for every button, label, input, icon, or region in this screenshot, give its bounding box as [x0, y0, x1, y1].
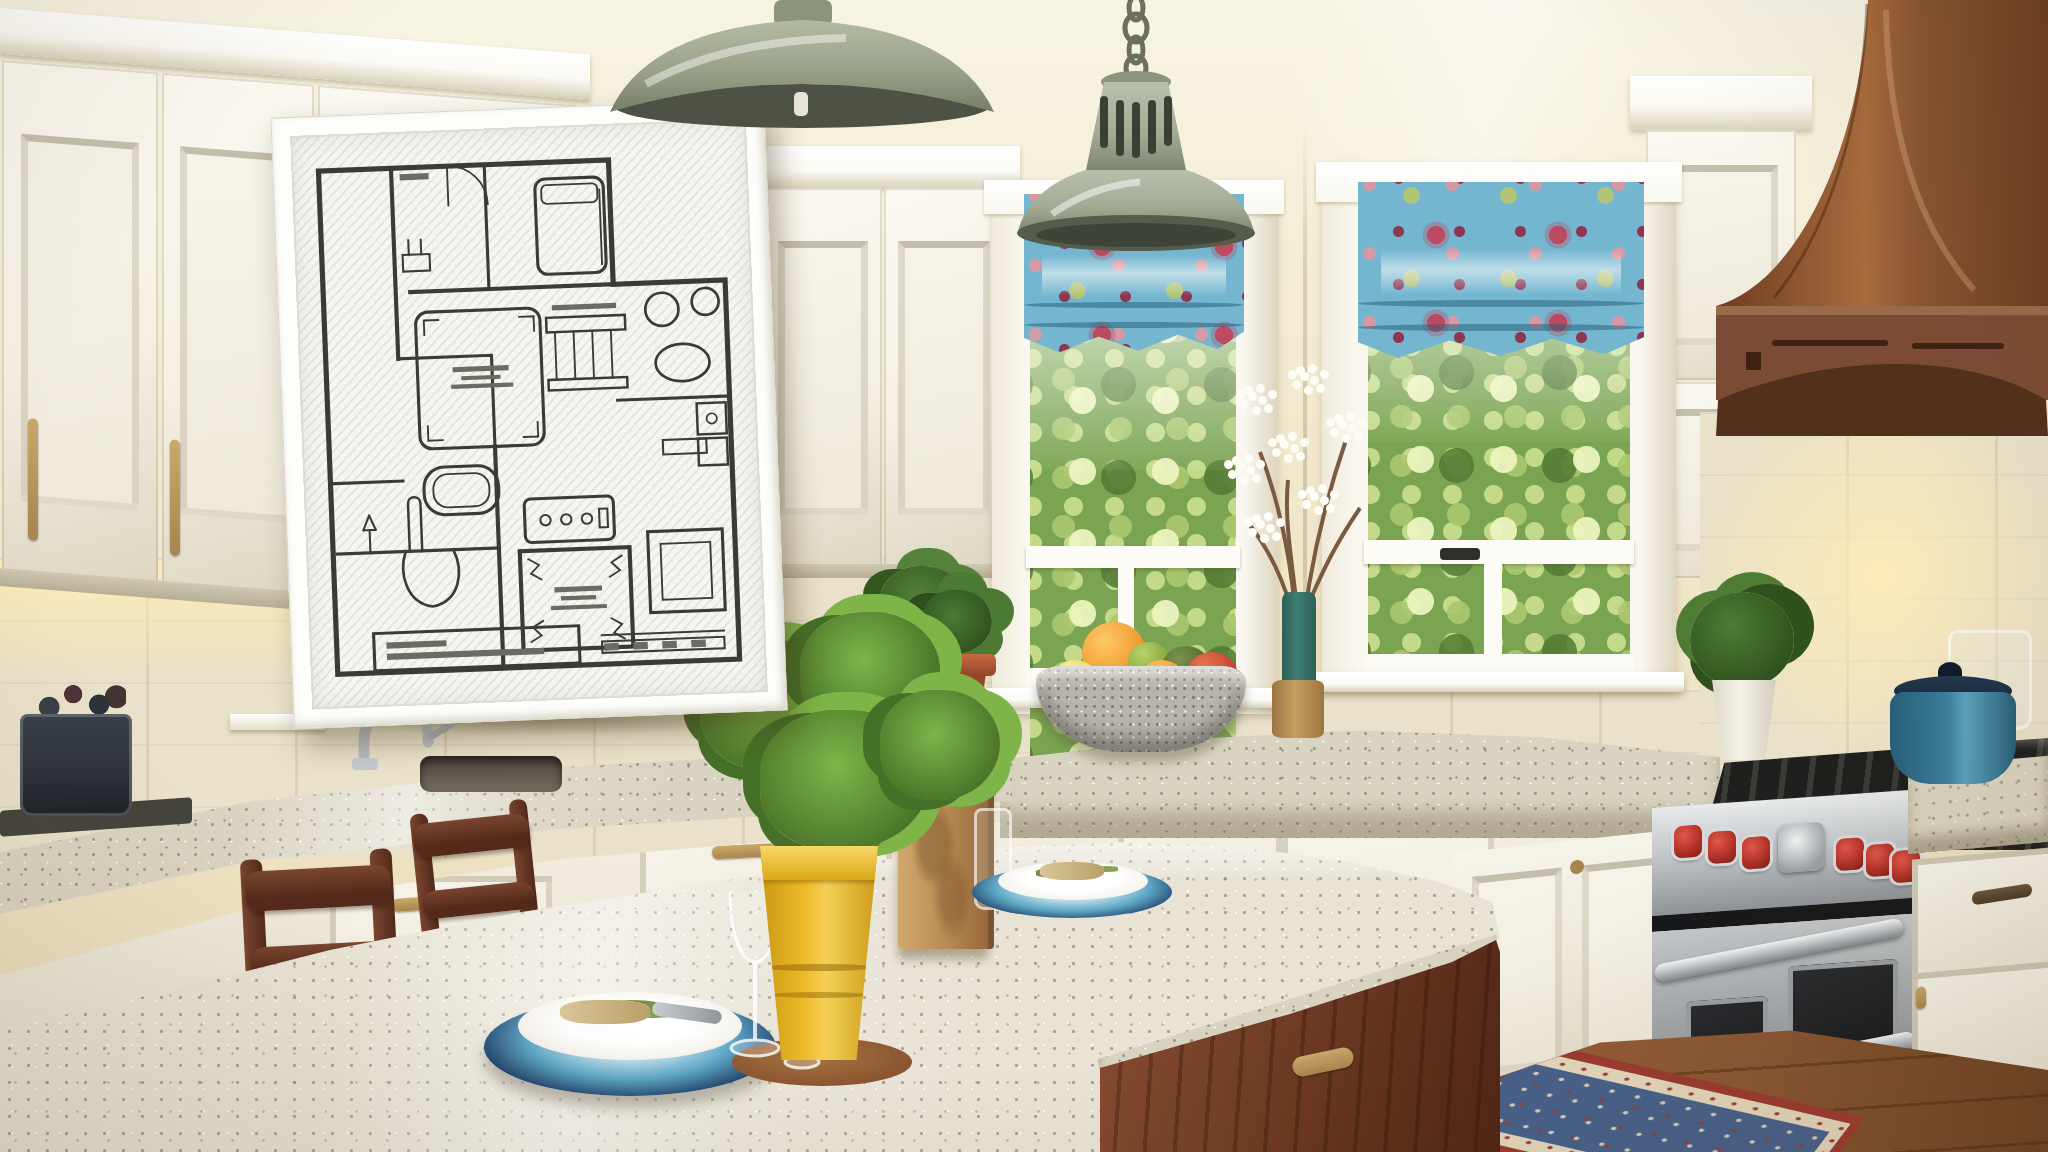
teal-vase [1282, 592, 1316, 686]
hood-top-trim [1742, 0, 1870, 14]
appetizer [560, 1000, 650, 1024]
door-panel [21, 133, 140, 511]
cabinet-door [2, 60, 158, 584]
sash-rail [1364, 540, 1634, 564]
range-knob [1836, 837, 1864, 871]
white-flower-cluster [1256, 520, 1265, 529]
utensil-basket [20, 714, 132, 816]
island-drawer-pull [1291, 1046, 1356, 1078]
hood-chimney [1716, 0, 2048, 312]
range-knob [1866, 843, 1894, 877]
white-flower-cluster [1300, 372, 1309, 381]
blueprint-canvas [290, 118, 768, 709]
range-knob [1674, 825, 1702, 859]
barn-pendant-light [1012, 0, 1262, 262]
range-knob [1708, 830, 1736, 864]
shade-fold [1358, 300, 1644, 307]
white-flower-cluster [1248, 392, 1257, 401]
door-panel [778, 241, 868, 515]
door-panel [898, 241, 989, 515]
white-flower-cluster [1236, 462, 1245, 471]
dome-pendant-light [606, 0, 998, 134]
pot-ridge [765, 964, 872, 971]
white-flower-cluster [1338, 420, 1347, 429]
floor-plan-drawing [290, 118, 768, 709]
kitchen-photo [0, 0, 2048, 1152]
hinge [1916, 986, 1926, 1009]
white-flower-cluster [1280, 440, 1289, 449]
roman-shade [1358, 182, 1644, 358]
sash-rail [1026, 546, 1240, 568]
teal-dutch-oven [1890, 692, 2016, 784]
window-lock [1440, 548, 1480, 560]
cabinet-handle [170, 439, 180, 556]
range-knob [1742, 836, 1770, 870]
drawer-front [1912, 847, 2048, 980]
cabinet-handle [28, 418, 38, 541]
blueprint-frame [270, 99, 787, 730]
window-sill [1314, 672, 1684, 692]
mid-upper-cabinet [744, 146, 1020, 586]
cabinet-door [884, 188, 1004, 568]
range-emblem [1778, 822, 1824, 873]
range-hood [1716, 0, 2048, 436]
pendant-chain [1125, 0, 1147, 80]
potted-plant-foliage [1690, 592, 1794, 688]
crown-molding [744, 146, 1020, 188]
shade-fold [1024, 302, 1244, 308]
shade-fold [1024, 322, 1244, 328]
sash-mullion [1484, 562, 1502, 662]
pot-rim [752, 846, 886, 880]
shade-fold [1358, 324, 1644, 331]
cabinet-door [764, 188, 882, 568]
white-flower-cluster [1310, 492, 1319, 501]
appetizer [1040, 862, 1104, 880]
chair-slat [244, 864, 392, 912]
cabinet-bottom-rail [758, 564, 1010, 578]
pot-ridge [771, 992, 867, 998]
vase-wood-base [1272, 680, 1324, 738]
